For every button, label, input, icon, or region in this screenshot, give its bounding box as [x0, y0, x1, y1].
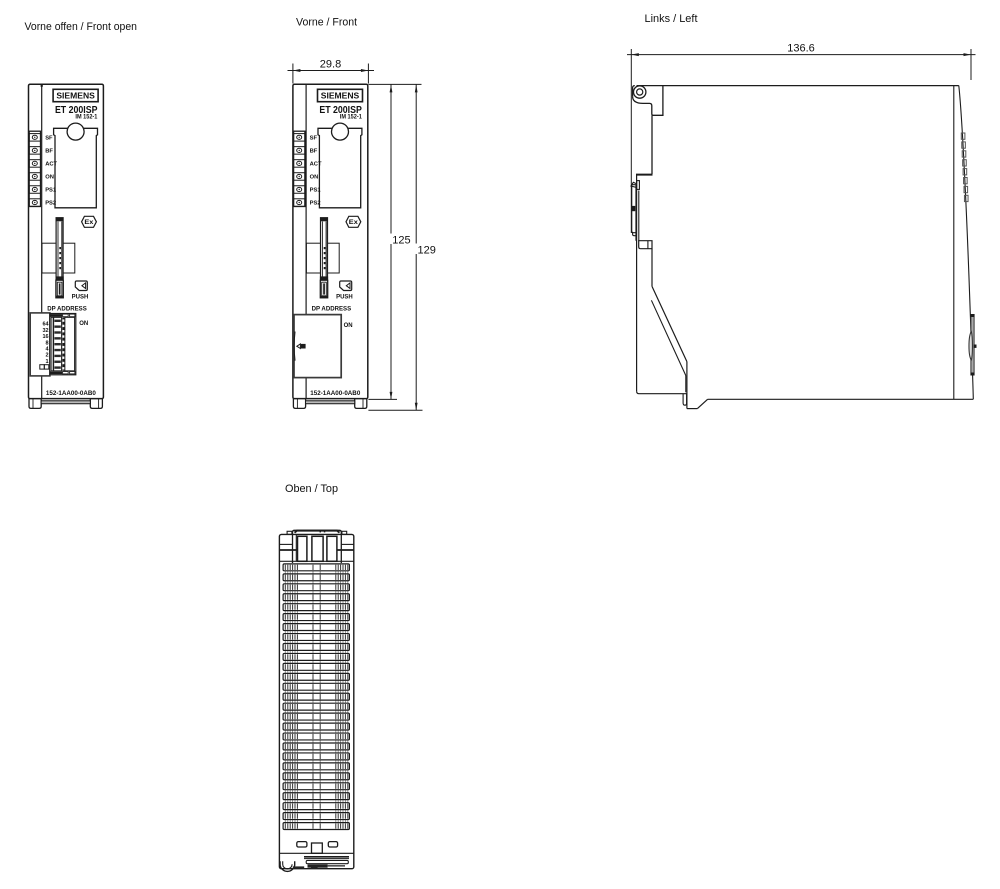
svg-text:PS1: PS1 — [45, 188, 57, 194]
svg-text:Vorne offen / Front open: Vorne offen / Front open — [25, 21, 138, 33]
svg-text:PS1: PS1 — [310, 188, 322, 194]
svg-text:125: 125 — [392, 234, 410, 246]
svg-text:ON: ON — [310, 175, 319, 181]
svg-text:Oben / Top: Oben / Top — [285, 483, 338, 495]
svg-text:16: 16 — [42, 334, 48, 340]
svg-text:32: 32 — [42, 328, 48, 334]
svg-text:Vorne / Front: Vorne / Front — [296, 17, 357, 29]
svg-text:152-1AA00-0AB0: 152-1AA00-0AB0 — [46, 390, 96, 397]
svg-text:ON: ON — [45, 175, 54, 181]
svg-text:Ex: Ex — [84, 219, 93, 226]
svg-text:2: 2 — [46, 353, 49, 359]
svg-text:PS2: PS2 — [310, 201, 321, 207]
svg-text:SF: SF — [310, 136, 318, 142]
svg-text:BF: BF — [310, 149, 318, 155]
svg-text:136.6: 136.6 — [787, 43, 815, 55]
svg-text:8: 8 — [46, 340, 49, 346]
svg-text:BF: BF — [45, 149, 53, 155]
svg-text:SIEMENS: SIEMENS — [321, 91, 360, 100]
svg-text:1: 1 — [46, 359, 49, 365]
svg-text:29.8: 29.8 — [320, 59, 341, 71]
svg-text:PS2: PS2 — [45, 201, 56, 207]
svg-text:ON: ON — [344, 323, 353, 329]
svg-text:SF: SF — [45, 136, 53, 142]
svg-text:ACT: ACT — [310, 162, 322, 168]
svg-text:ON: ON — [79, 321, 88, 327]
svg-text:129: 129 — [418, 244, 436, 256]
svg-text:PUSH: PUSH — [336, 294, 353, 300]
svg-text:SIEMENS: SIEMENS — [56, 91, 95, 100]
svg-text:PUSH: PUSH — [72, 294, 89, 300]
svg-text:Links / Left: Links / Left — [645, 13, 698, 25]
svg-text:IM 152-1: IM 152-1 — [75, 114, 97, 121]
svg-text:DP ADDRESS: DP ADDRESS — [47, 305, 87, 312]
svg-text:DP ADDRESS: DP ADDRESS — [312, 305, 352, 312]
svg-text:64: 64 — [42, 322, 49, 328]
svg-text:152-1AA00-0AB0: 152-1AA00-0AB0 — [310, 390, 360, 397]
svg-text:IM 152-1: IM 152-1 — [340, 114, 362, 121]
svg-text:ACT: ACT — [45, 162, 57, 168]
svg-text:Ex: Ex — [349, 219, 358, 226]
